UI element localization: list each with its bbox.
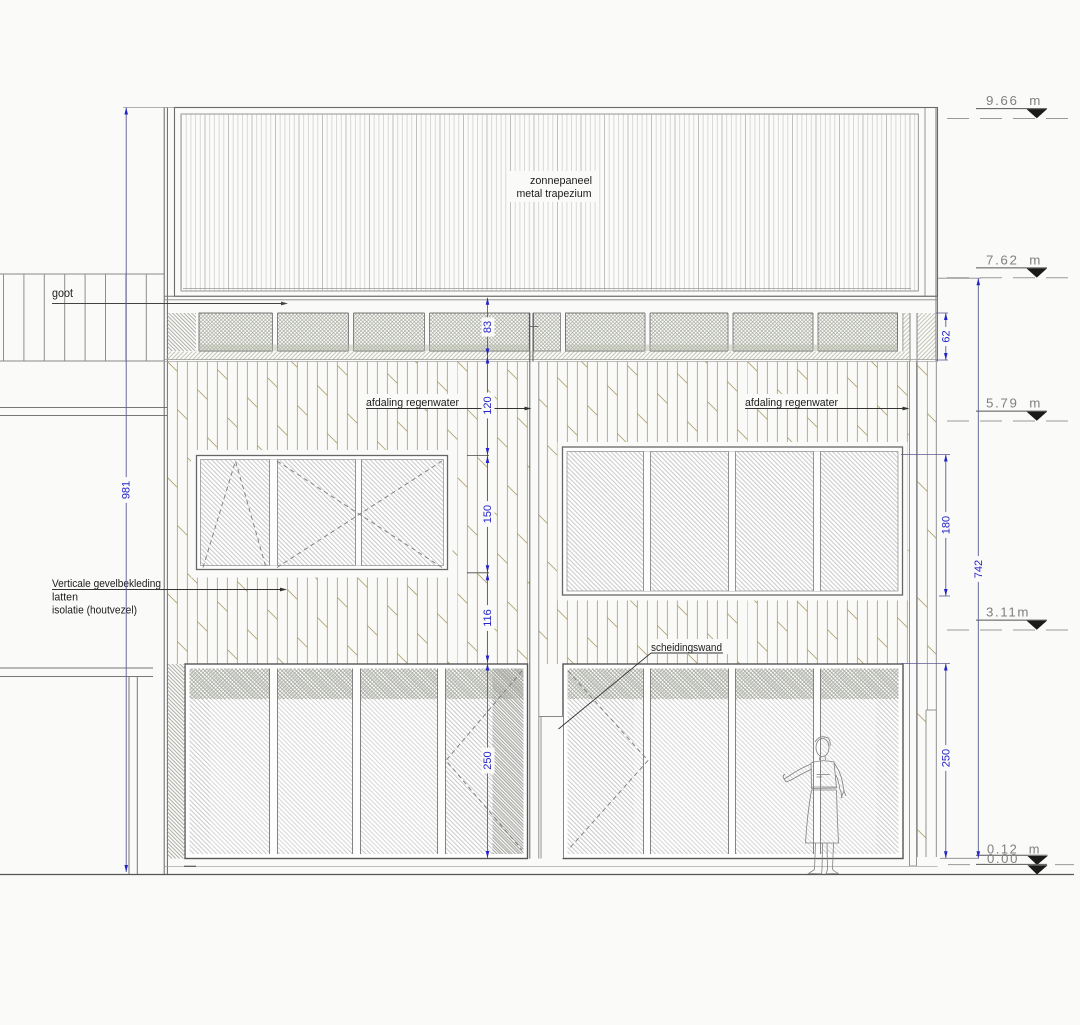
svg-text:62: 62 [940,330,952,342]
svg-text:120: 120 [482,396,494,414]
svg-text:metal trapezium: metal trapezium [517,188,592,200]
svg-text:goot: goot [52,288,74,300]
svg-text:latten: latten [52,592,78,604]
svg-text:0.00: 0.00 [987,851,1019,866]
svg-text:afdaling regenwater: afdaling regenwater [366,397,459,409]
svg-text:250: 250 [940,749,952,767]
svg-text:5.79 m: 5.79 m [986,396,1042,411]
svg-text:3.11m: 3.11m [986,605,1030,620]
svg-text:9.66 m: 9.66 m [986,93,1042,108]
svg-text:afdaling regenwater: afdaling regenwater [745,397,838,409]
svg-text:981: 981 [121,481,133,499]
svg-text:180: 180 [940,516,952,534]
svg-text:Verticale gevelbekleding: Verticale gevelbekleding [52,578,161,590]
svg-text:742: 742 [973,560,985,578]
svg-text:83: 83 [482,321,494,333]
svg-text:116: 116 [482,609,494,627]
svg-text:150: 150 [482,505,494,523]
svg-text:zonnepaneel: zonnepaneel [530,175,592,187]
svg-text:7.62 m: 7.62 m [986,253,1042,268]
svg-text:isolatie (houtvezel): isolatie (houtvezel) [52,605,137,617]
svg-text:250: 250 [482,751,494,769]
svg-text:scheidingswand: scheidingswand [651,642,722,654]
